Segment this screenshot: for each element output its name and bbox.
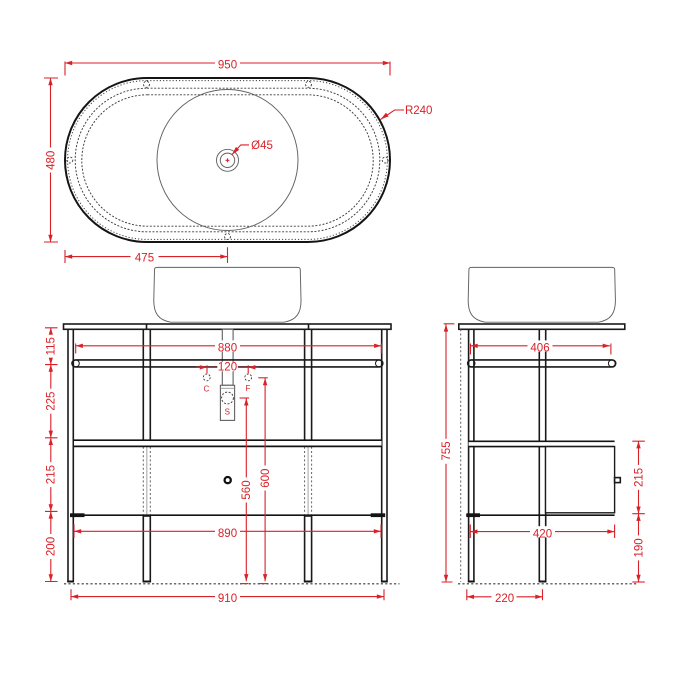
svg-text:120: 120 [218,362,237,374]
svg-text:475: 475 [135,253,154,265]
svg-text:406: 406 [530,343,549,355]
svg-text:115: 115 [46,337,58,355]
svg-text:200: 200 [46,537,58,556]
svg-text:950: 950 [218,60,237,72]
svg-text:910: 910 [218,593,237,605]
svg-text:S: S [225,408,230,417]
svg-text:F: F [245,384,250,393]
svg-text:600: 600 [260,469,272,488]
svg-text:C: C [204,385,210,394]
svg-text:Ø45: Ø45 [251,140,273,152]
svg-text:215: 215 [46,465,58,484]
svg-text:190: 190 [633,538,645,557]
svg-text:420: 420 [533,528,552,540]
svg-text:890: 890 [218,528,237,540]
svg-text:220: 220 [495,593,514,605]
svg-text:880: 880 [218,343,237,355]
svg-text:560: 560 [241,480,253,499]
svg-text:755: 755 [441,441,453,460]
svg-text:R240: R240 [405,105,433,117]
svg-text:225: 225 [46,392,58,411]
svg-text:215: 215 [633,468,645,487]
svg-text:480: 480 [45,151,57,170]
